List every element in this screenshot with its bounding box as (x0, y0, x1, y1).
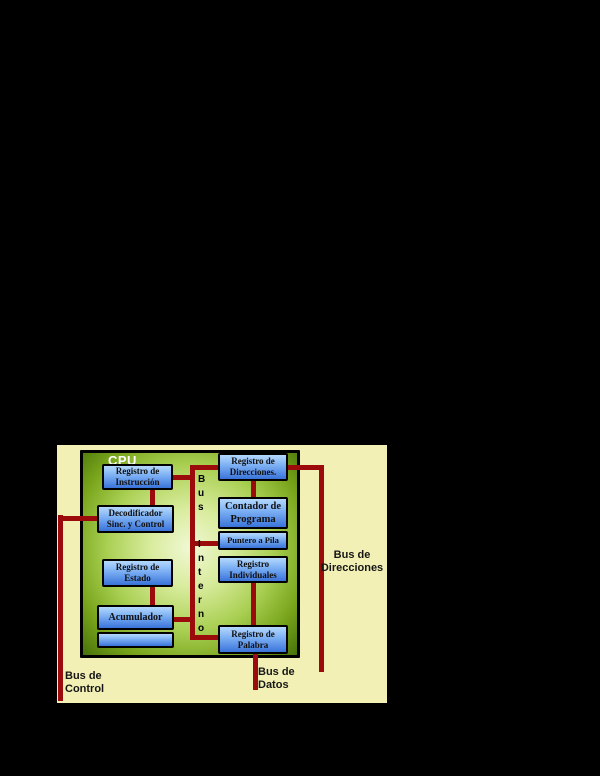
label-line: Datos (258, 679, 295, 692)
bus-letter: o (198, 622, 204, 636)
box-acumulador: Acumulador (97, 605, 174, 630)
bus-letter: u (198, 487, 205, 501)
box-label-line: Contador de (220, 500, 286, 513)
box-label-line: Registro (220, 559, 286, 570)
box-contador-programa: Contador de Programa (218, 497, 288, 529)
label-line: Bus de (65, 670, 104, 683)
box-label-line: Individuales (220, 570, 286, 581)
label-line: Bus de (258, 666, 295, 679)
box-registro-direcciones: Registro de Direcciones. (218, 453, 288, 481)
bus-branch-acumulador (172, 617, 190, 622)
bus-branch-direcciones (193, 465, 218, 470)
connector-individuales-palabra (251, 583, 256, 625)
box-registro-estado: Registro de Estado (102, 559, 173, 587)
box-label-line: Registro de (220, 456, 286, 467)
box-registro-individuales: Registro Individuales (218, 556, 288, 583)
box-registro-palabra: Registro de Palabra (218, 625, 288, 654)
label-bus-control: Bus de Control (65, 670, 104, 696)
bus-letter: s (198, 501, 205, 515)
box-acumulador-extension (97, 632, 174, 648)
box-label-line: Instrucción (104, 477, 171, 488)
box-puntero-pila: Puntero a Pila (218, 531, 288, 550)
bus-letter: e (198, 580, 204, 594)
connector-direcciones-contador (251, 481, 256, 497)
box-label-line: Estado (104, 573, 171, 584)
box-label-line: Registro de (220, 629, 286, 640)
connector-instruccion-decodificador (150, 490, 155, 505)
bus-control-vertical (58, 515, 63, 701)
label-line: Control (65, 683, 104, 696)
label-bus-direcciones: Bus de Direcciones (315, 549, 389, 575)
connector-estado-acumulador (150, 587, 155, 605)
box-label-line: Sinc. y Control (99, 519, 172, 530)
box-decodificador: Decodificador Sinc. y Control (97, 505, 174, 533)
cpu-diagram-panel: CPU Registro de Instrucción Decodificado… (57, 445, 387, 703)
label-bus-datos: Bus de Datos (258, 666, 295, 692)
box-label-line: Acumulador (99, 612, 172, 623)
bus-letter: I (198, 538, 204, 552)
bus-letter: t (198, 566, 204, 580)
box-registro-instruccion: Registro de Instrucción (102, 464, 173, 490)
bus-letter: B (198, 473, 205, 487)
bus-internal-vertical (190, 465, 195, 640)
internal-bus-word-interno: I n t e r n o (198, 538, 204, 636)
bus-letter: n (198, 552, 204, 566)
box-label-line: Registro de (104, 466, 171, 477)
box-label-line: Decodificador (99, 508, 172, 519)
bus-letter: r (198, 594, 204, 608)
bus-letter: n (198, 608, 204, 622)
internal-bus-word-bus: B u s (198, 473, 205, 515)
bus-branch-instruccion (171, 475, 190, 480)
box-label-line: Registro de (104, 562, 171, 573)
box-label-line: Direcciones. (220, 467, 286, 478)
label-line: Bus de (315, 549, 389, 562)
box-label-line: Programa (220, 513, 286, 526)
bus-branch-decodificador (58, 516, 97, 521)
box-label-line: Palabra (220, 640, 286, 651)
box-label-line: Puntero a Pila (220, 535, 286, 546)
label-line: Direcciones (315, 562, 389, 575)
